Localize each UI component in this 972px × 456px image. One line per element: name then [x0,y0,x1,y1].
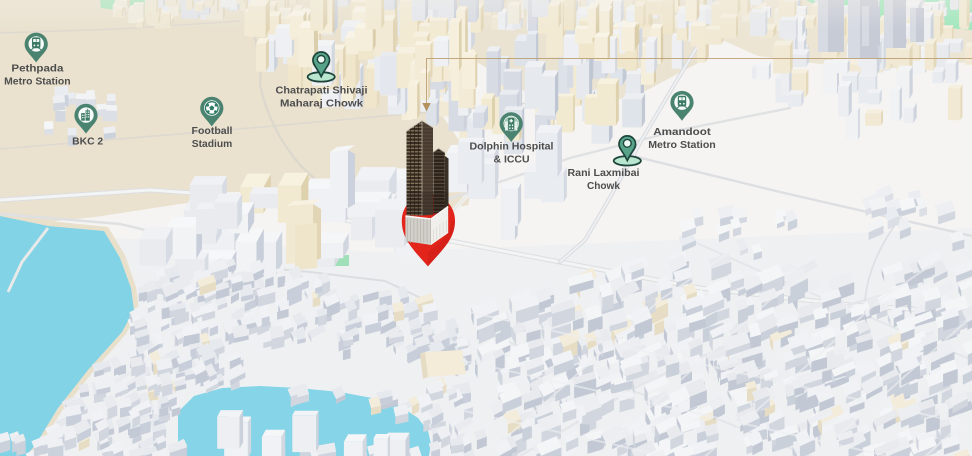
svg-text:BKC 2: BKC 2 [72,137,103,148]
svg-text:Chowk: Chowk [587,181,620,192]
svg-text:Amandoot: Amandoot [653,127,711,138]
svg-text:Rani Laxmibai: Rani Laxmibai [568,168,640,179]
svg-text:Metro Station: Metro Station [4,77,71,88]
svg-text:Chatrapati Shivaji: Chatrapati Shivaji [276,86,368,97]
svg-text:Dolphin Hospital: Dolphin Hospital [470,141,554,152]
svg-text:Stadium: Stadium [192,139,233,150]
svg-text:& ICCU: & ICCU [494,154,530,165]
svg-text:Maharaj Chowk: Maharaj Chowk [280,99,363,110]
svg-text:Football: Football [192,126,233,137]
svg-text:Metro Station: Metro Station [648,140,716,151]
svg-text:Pethpada: Pethpada [11,64,63,75]
